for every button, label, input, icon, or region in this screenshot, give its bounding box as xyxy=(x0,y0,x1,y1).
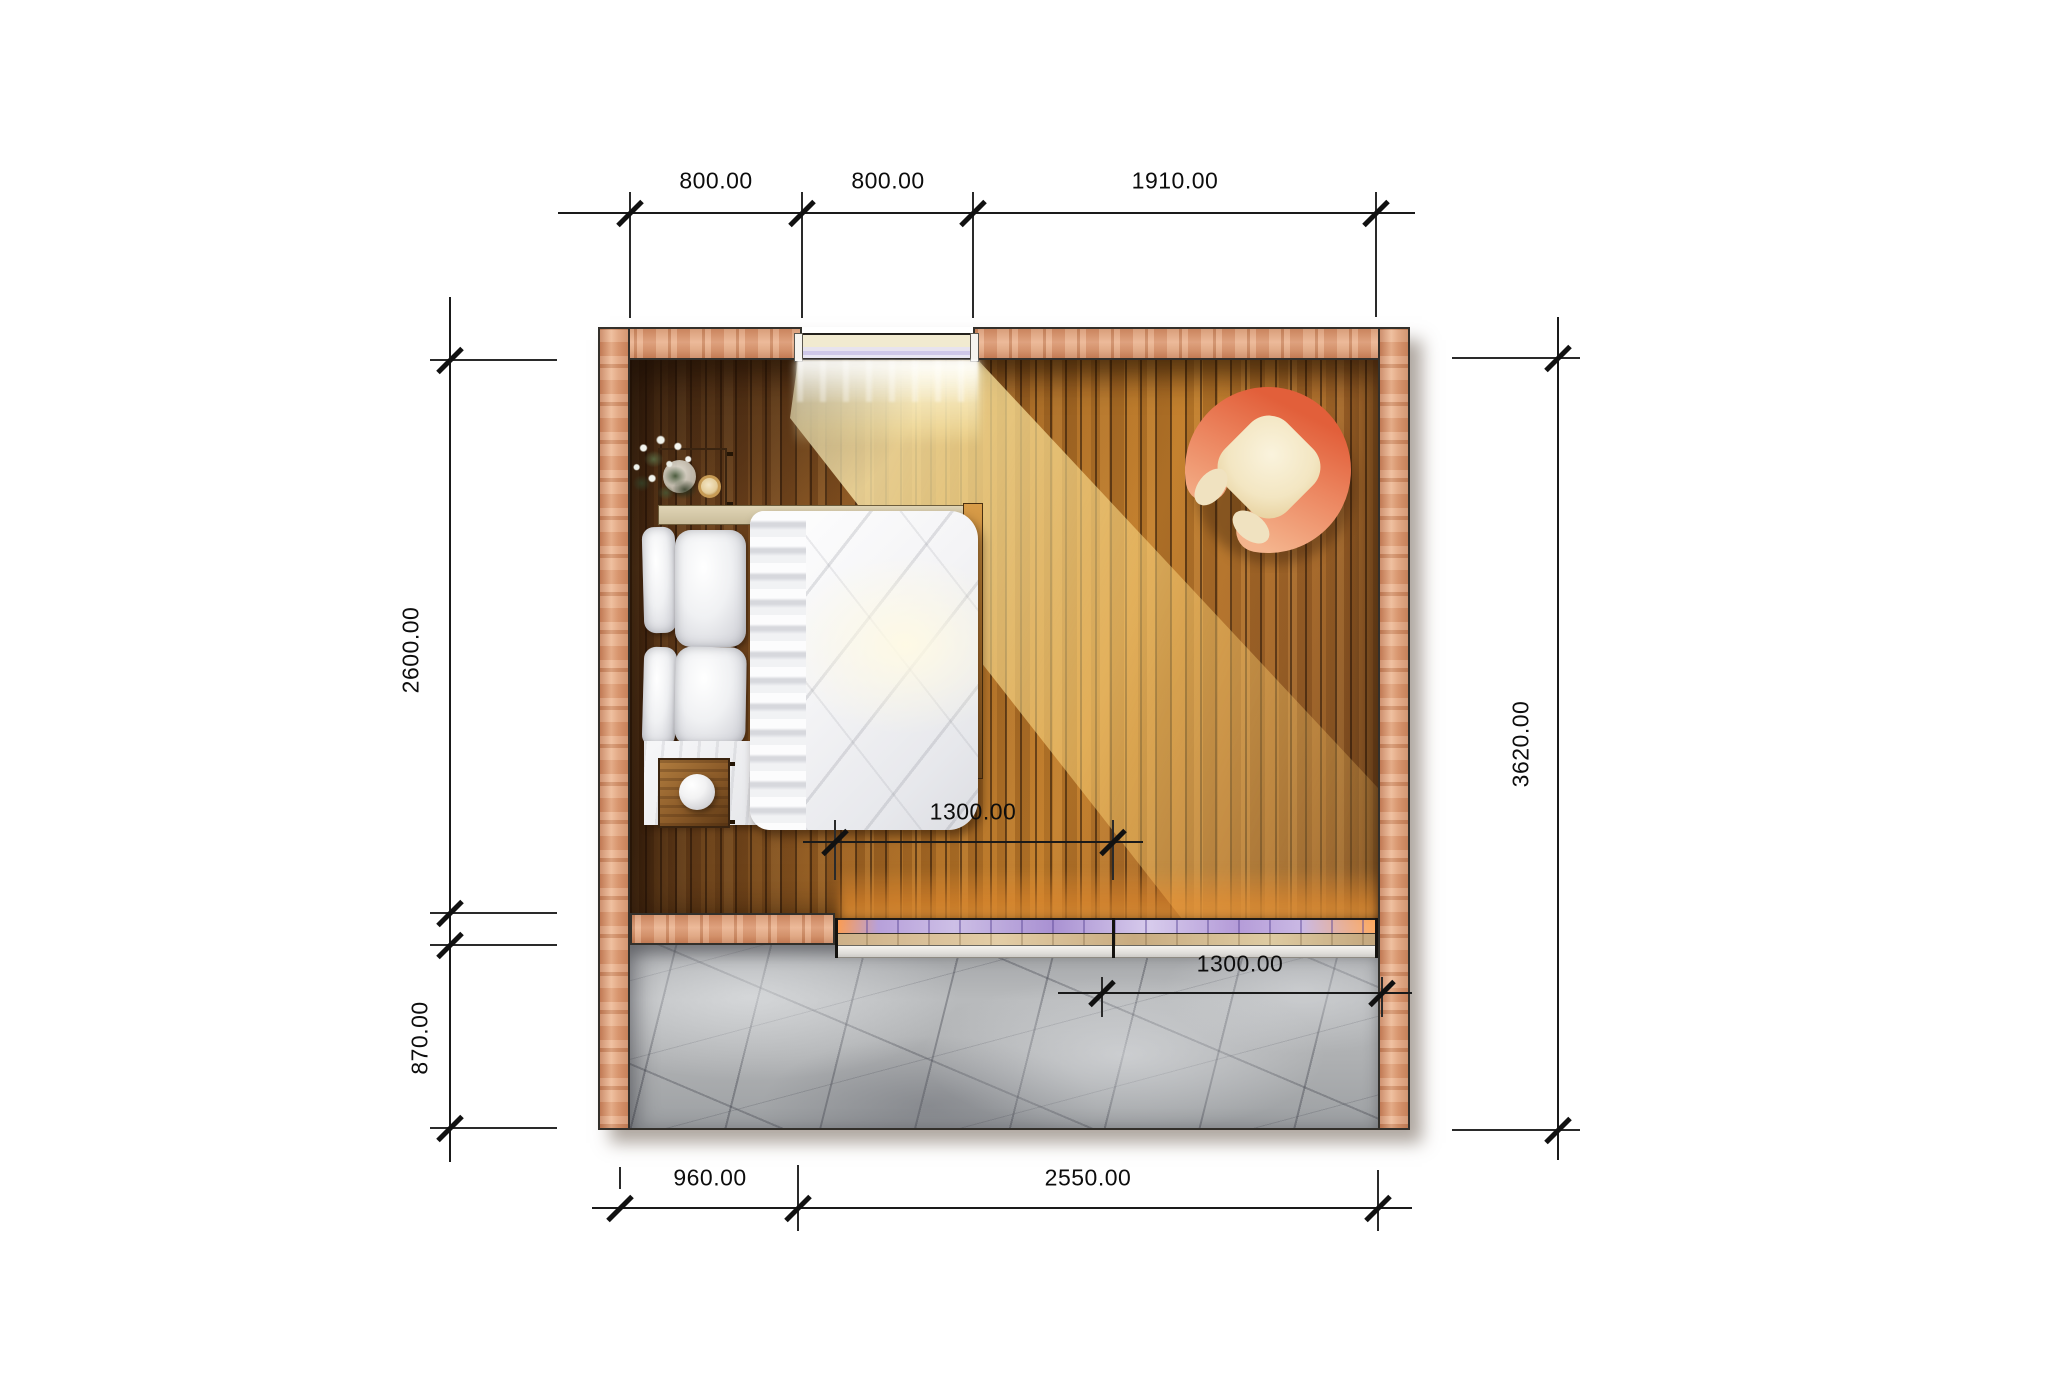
door-end-left xyxy=(835,918,838,958)
dim-ext xyxy=(619,1167,621,1189)
dim-ext xyxy=(797,1165,799,1231)
dim-label-top-3: 1910.00 xyxy=(1132,168,1219,195)
dim-label-interior-1: 1300.00 xyxy=(930,799,1017,826)
floor-plan-canvas: 800.00 800.00 1910.00 2600.00 870.00 362… xyxy=(0,0,2048,1374)
window-jamb-right xyxy=(970,333,979,362)
window xyxy=(802,333,973,360)
dim-line-interior-b xyxy=(1058,992,1412,994)
wall-partition xyxy=(630,913,835,945)
dim-ext xyxy=(1112,820,1114,880)
sliding-door-sill xyxy=(835,945,1378,958)
dim-line-left xyxy=(449,297,451,1162)
dim-label-bottom-2: 2550.00 xyxy=(1045,1165,1132,1192)
sliding-door-glass xyxy=(835,918,1378,933)
plant-bouquet xyxy=(628,432,714,512)
armchair xyxy=(1185,383,1370,573)
dim-line-top xyxy=(558,212,1415,214)
dim-label-right-1: 3620.00 xyxy=(1508,701,1535,788)
pillow xyxy=(675,530,746,647)
sliding-door-frame xyxy=(835,933,1378,945)
door-panel-divider xyxy=(1112,918,1115,958)
wall-top-right xyxy=(973,327,1410,360)
wall-left xyxy=(598,327,630,1130)
window-sheer-curtain xyxy=(797,360,978,402)
dim-label-top-1: 800.00 xyxy=(679,168,752,195)
pillow xyxy=(674,646,747,746)
pillow xyxy=(642,647,678,748)
sunlight-door-glow xyxy=(840,868,1378,920)
dim-label-bottom-1: 960.00 xyxy=(673,1165,746,1192)
dim-line-interior-a xyxy=(803,841,1143,843)
dim-label-top-2: 800.00 xyxy=(851,168,924,195)
dim-ext xyxy=(834,820,836,880)
dim-line-right xyxy=(1557,317,1559,1160)
duvet-ruffle xyxy=(750,511,806,830)
sphere-lamp xyxy=(679,774,715,810)
door-end-right xyxy=(1375,918,1378,958)
dim-line-bottom xyxy=(592,1207,1412,1209)
dim-label-interior-2: 1300.00 xyxy=(1197,951,1284,978)
dim-label-left-1: 2600.00 xyxy=(398,607,425,694)
dim-ext xyxy=(1377,1170,1379,1231)
dim-label-left-2: 870.00 xyxy=(407,1001,434,1074)
pillow xyxy=(642,527,678,634)
window-jamb-left xyxy=(794,333,803,362)
